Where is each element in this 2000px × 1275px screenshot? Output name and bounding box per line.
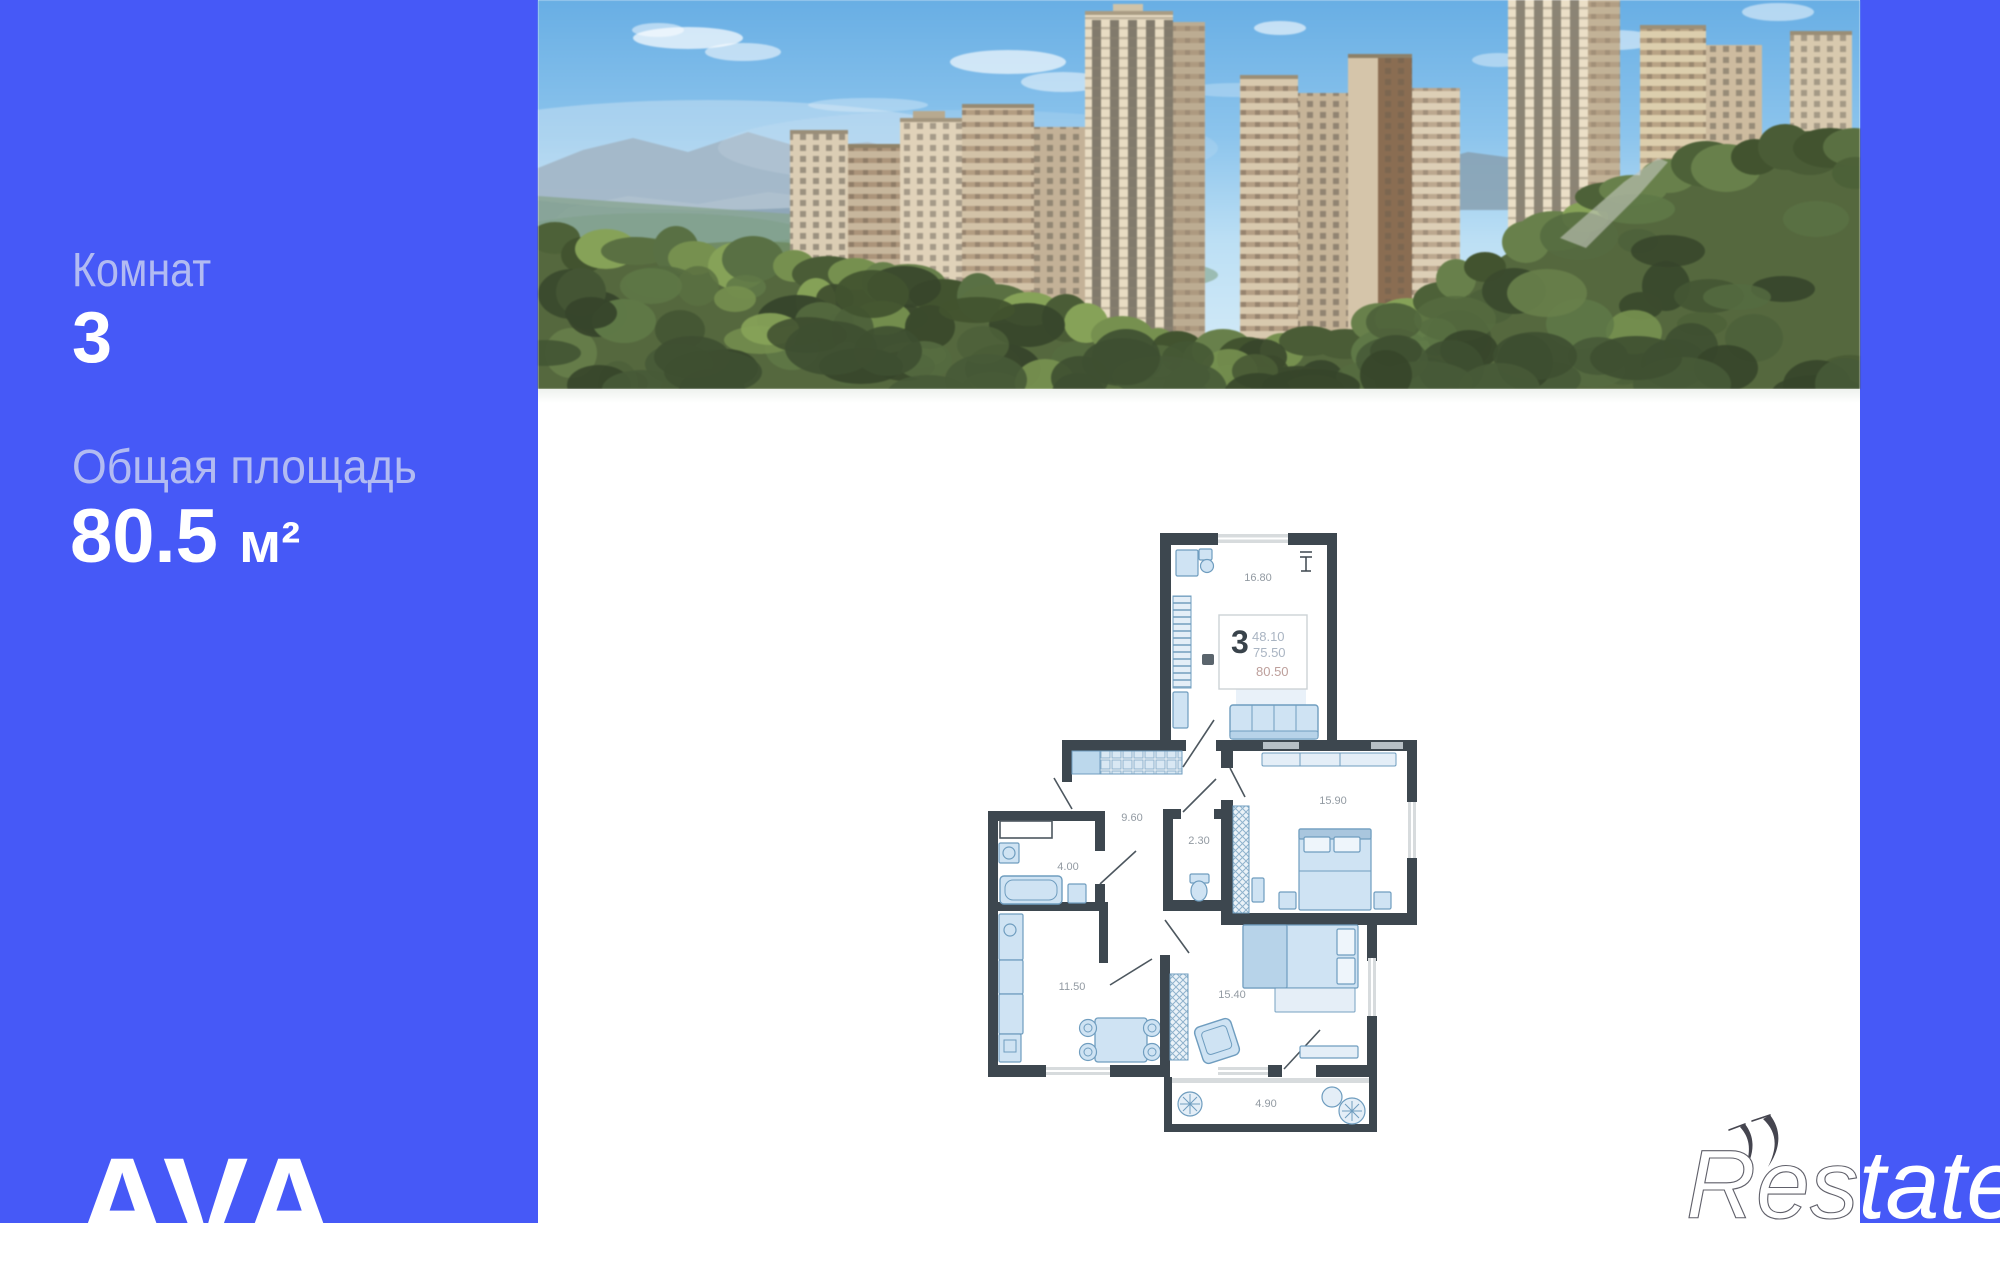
svg-text:2.30: 2.30	[1188, 835, 1209, 847]
svg-text:4.00: 4.00	[1057, 861, 1078, 873]
svg-text:3: 3	[1231, 624, 1249, 660]
svg-text:75.50: 75.50	[1253, 645, 1286, 660]
svg-text:16.80: 16.80	[1244, 572, 1272, 584]
svg-text:15.90: 15.90	[1319, 795, 1347, 807]
svg-text:48.10: 48.10	[1252, 629, 1285, 644]
svg-text:4.90: 4.90	[1255, 1098, 1276, 1110]
svg-text:9.60: 9.60	[1121, 812, 1142, 824]
svg-text:11.50: 11.50	[1059, 981, 1086, 993]
svg-text:80.50: 80.50	[1256, 664, 1289, 679]
svg-text:15.40: 15.40	[1218, 989, 1246, 1001]
